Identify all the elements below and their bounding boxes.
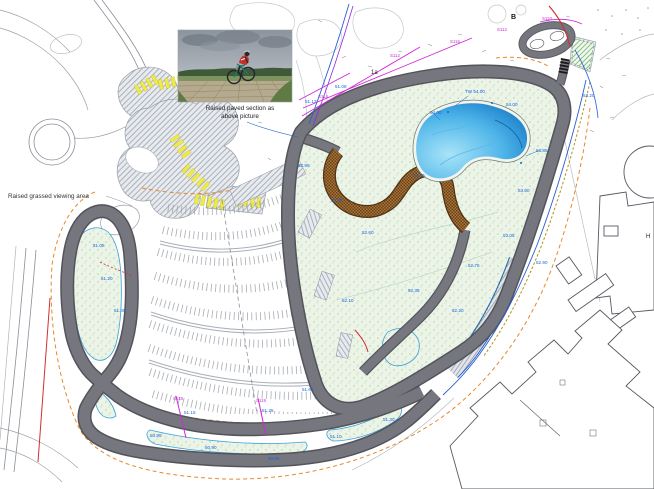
label-blue: 51.12 (305, 99, 317, 104)
site-plan-canvas: Raised paved section asabove pictureRais… (0, 0, 654, 489)
label-magenta: S118 (173, 396, 183, 401)
label-blue: 51.15 (184, 410, 196, 415)
label-blue: 52.20 (452, 308, 464, 313)
label-blue: 52.95 (298, 163, 310, 168)
label-note: Raised grassed viewing area (8, 193, 89, 200)
label-caption: above picture (221, 113, 259, 120)
label-blue: 52.85 (331, 198, 343, 203)
label-blue: 52.60 (362, 230, 374, 235)
label-blue: 53.20 (583, 93, 595, 98)
label-blue: 52.90 (536, 260, 548, 265)
label-magenta: S116 (450, 39, 460, 44)
label-blue: 51.08 (335, 84, 347, 89)
label-blue: 51.45 (114, 308, 126, 313)
label-blue: 53.05 (503, 233, 515, 238)
label-caption: Raised paved section as (206, 105, 275, 112)
label-magenta: S112 (390, 53, 400, 58)
label-blue: 53.40 (413, 173, 425, 178)
label-blue: 50.95 (268, 456, 280, 461)
label-blue: 52.35 (408, 288, 420, 293)
label-blue: 50.85 (150, 433, 162, 438)
label-magenta: S119 (256, 398, 266, 403)
inset-photo (178, 30, 292, 102)
label-blue: 50.90 (205, 445, 217, 450)
label-blue: 52.75 (468, 263, 480, 268)
label-blue: 51.30 (383, 417, 395, 422)
label-blue: 53.60 (518, 188, 530, 193)
label-blue: 51.25 (262, 408, 274, 413)
label-blue: 51.60 (302, 387, 314, 392)
label-blue: 51.20 (101, 276, 113, 281)
label-small: 1a (371, 70, 378, 76)
label-blue: TW 54.00 (465, 89, 485, 94)
label-blue: 54.00 (506, 102, 518, 107)
label-bold: B (511, 14, 516, 21)
label-blue: 52.10 (342, 298, 354, 303)
label-magenta: S114 (318, 94, 328, 99)
label-small: H (646, 234, 650, 240)
label-magenta: S110 (542, 16, 552, 21)
label-magenta: S112 (497, 27, 507, 32)
label-blue: 51.05 (93, 243, 105, 248)
label-blue: 53.85 (536, 148, 548, 153)
site-plan-drawing: Raised paved section asabove pictureRais… (0, 0, 654, 489)
building-east (596, 192, 654, 314)
label-blue: 54.00 (430, 110, 442, 115)
label-blue: 51.10 (330, 434, 342, 439)
